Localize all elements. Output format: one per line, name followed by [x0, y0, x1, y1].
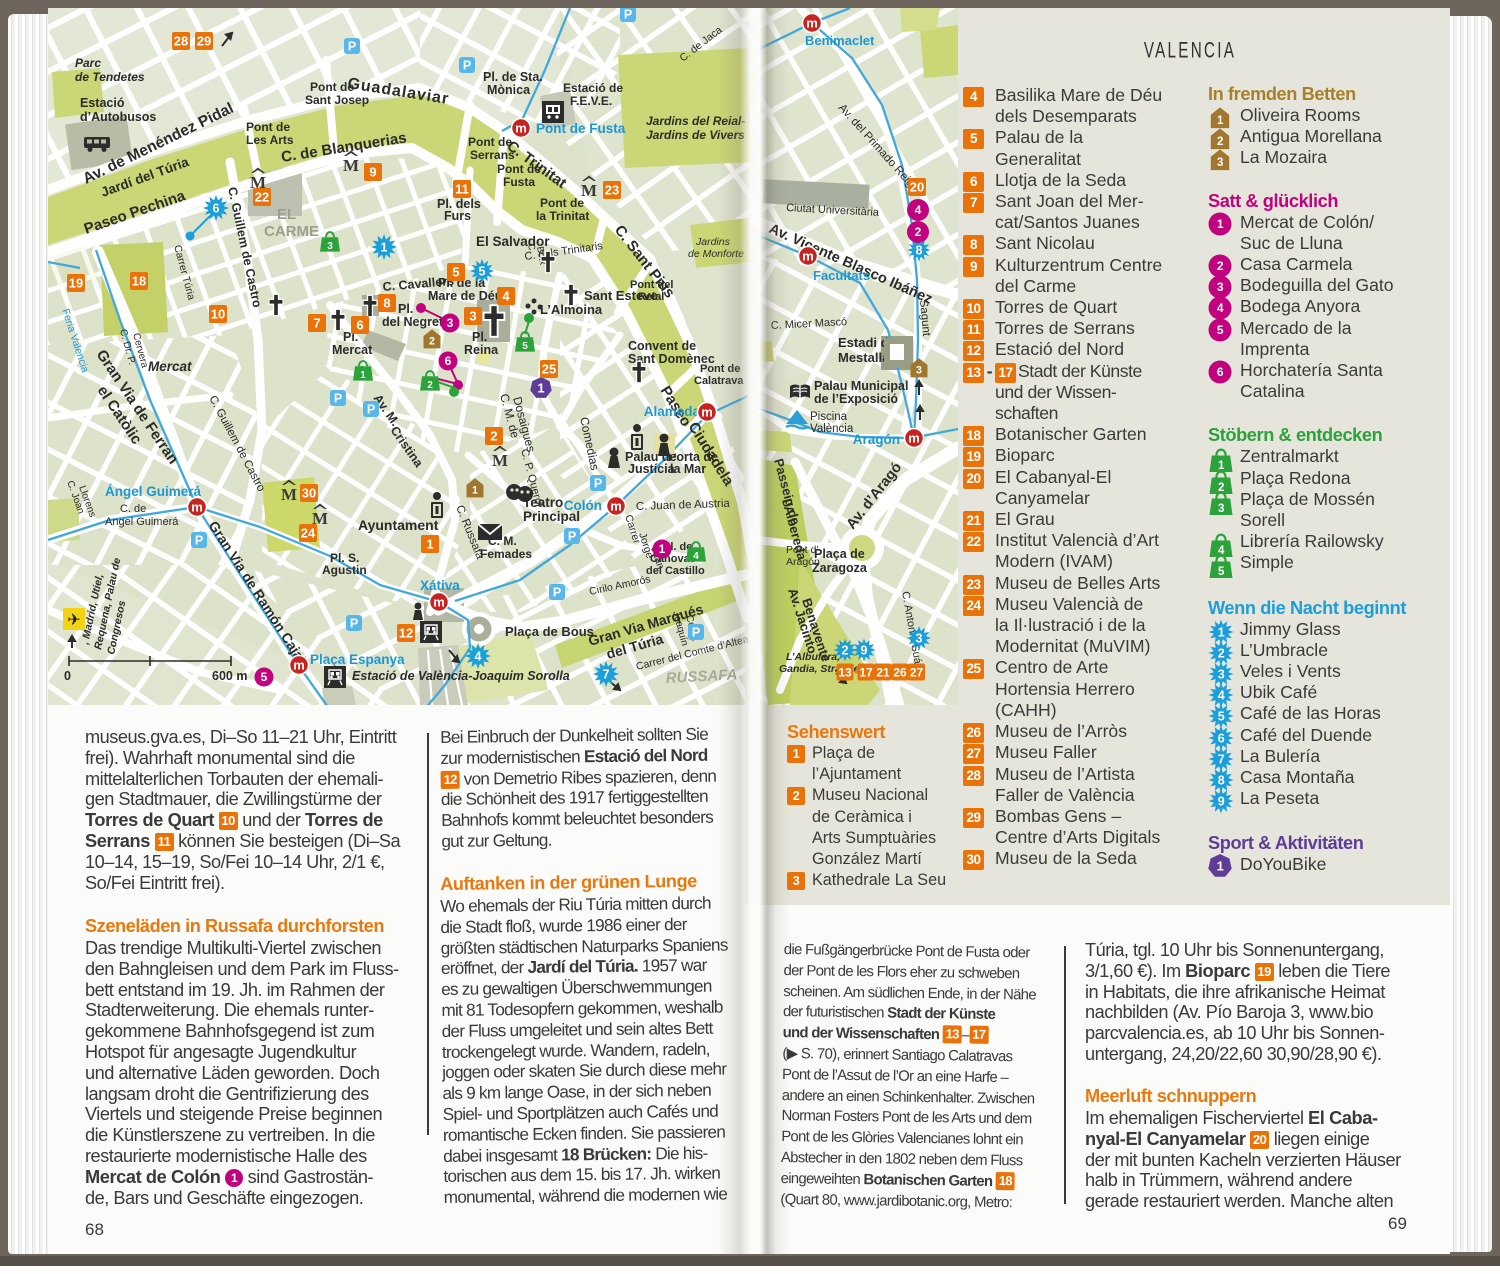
svg-text:7: 7 [313, 316, 320, 331]
svg-text:1: 1 [360, 370, 366, 381]
svg-text:d’Autobusos: d’Autobusos [80, 110, 156, 124]
svg-text:M: M [492, 451, 508, 470]
svg-text:P: P [568, 530, 576, 544]
svg-text:m: m [293, 658, 305, 673]
svg-text:M: M [281, 485, 297, 504]
svg-text:10: 10 [211, 307, 225, 322]
svg-text:Les Arts: Les Arts [246, 133, 294, 147]
svg-text:M: M [343, 156, 359, 175]
svg-text:Aragón: Aragón [786, 556, 820, 568]
svg-text:3: 3 [327, 241, 333, 252]
svg-text:m: m [191, 500, 203, 515]
svg-text:Zaragoza: Zaragoza [812, 561, 868, 575]
svg-text:Pont de Fusta: Pont de Fusta [536, 121, 626, 136]
svg-text:3: 3 [916, 632, 923, 646]
svg-text:17: 17 [859, 665, 873, 679]
svg-text:1: 1 [1218, 625, 1225, 639]
svg-text:7: 7 [1218, 752, 1225, 766]
svg-text:28: 28 [174, 34, 188, 49]
svg-text:4: 4 [915, 203, 922, 217]
svg-text:3: 3 [1218, 668, 1225, 682]
svg-text:Angel Guimerá: Angel Guimerá [105, 516, 179, 528]
svg-text:del Castillo: del Castillo [646, 565, 705, 577]
svg-text:5: 5 [1218, 566, 1225, 578]
svg-text:Facultats: Facultats [813, 268, 870, 283]
svg-text:2: 2 [842, 644, 849, 658]
svg-text:Pont de: Pont de [310, 80, 354, 94]
svg-text:la Trinitat: la Trinitat [536, 209, 589, 223]
svg-text:25: 25 [542, 362, 556, 377]
svg-text:Sant Esteve: Sant Esteve [584, 288, 658, 303]
svg-text:4: 4 [475, 650, 482, 664]
svg-text:Mestalla: Mestalla [838, 350, 890, 365]
svg-text:1: 1 [537, 381, 544, 396]
svg-text:Pl.: Pl. [398, 302, 413, 316]
svg-text:Furs: Furs [444, 209, 471, 223]
svg-text:C. de: C. de [120, 503, 146, 515]
svg-text:5: 5 [479, 265, 486, 279]
svg-text:3: 3 [1218, 503, 1224, 515]
svg-text:19: 19 [69, 276, 83, 291]
svg-text:CARME: CARME [264, 223, 319, 240]
svg-text:6: 6 [1218, 731, 1225, 745]
svg-text:5: 5 [1217, 323, 1224, 337]
svg-text:Pont de: Pont de [246, 120, 290, 134]
svg-text:1: 1 [472, 485, 478, 497]
svg-text:Plaça de: Plaça de [814, 547, 865, 561]
svg-text:la Mar: la Mar [670, 462, 706, 476]
svg-text:5: 5 [452, 265, 459, 280]
svg-text:3: 3 [1217, 280, 1224, 294]
svg-text:2: 2 [429, 336, 435, 348]
svg-text:✈: ✈ [67, 612, 80, 629]
svg-text:Aragón: Aragón [853, 432, 900, 447]
svg-text:2: 2 [1217, 259, 1224, 273]
svg-text:Xátiva: Xátiva [420, 578, 460, 593]
svg-text:Sant Josep: Sant Josep [305, 93, 369, 107]
svg-text:Estació de: Estació de [563, 81, 623, 95]
svg-text:Pont d’: Pont d’ [786, 544, 819, 556]
svg-text:València: València [810, 423, 854, 435]
svg-text:1: 1 [426, 537, 433, 552]
svg-text:F.E.V.E.: F.E.V.E. [570, 94, 612, 108]
svg-text:8: 8 [383, 296, 390, 311]
svg-text:P: P [350, 617, 358, 631]
svg-text:L’Albufera,: L’Albufera, [786, 651, 840, 663]
svg-text:m: m [701, 405, 713, 420]
svg-text:1: 1 [1217, 115, 1224, 127]
svg-text:0: 0 [64, 669, 71, 683]
svg-text:3: 3 [1217, 157, 1223, 169]
svg-text:P: P [195, 534, 203, 548]
svg-text:Mare de Déu: Mare de Déu [428, 289, 502, 303]
svg-text:Benimaclet: Benimaclet [805, 33, 875, 48]
svg-text:Reina: Reina [464, 343, 499, 357]
svg-text:del Negret: del Negret [382, 315, 444, 329]
svg-text:Colón: Colón [564, 498, 602, 513]
svg-text:29: 29 [197, 34, 211, 49]
svg-text:2: 2 [1217, 136, 1223, 148]
svg-text:Mercat: Mercat [332, 343, 373, 357]
svg-text:1: 1 [381, 241, 388, 255]
svg-text:6: 6 [1217, 365, 1224, 379]
svg-text:Palau Municipal: Palau Municipal [814, 379, 908, 393]
svg-text:4: 4 [502, 289, 510, 304]
svg-text:P: P [594, 477, 602, 491]
svg-text:Estació: Estació [80, 96, 125, 110]
svg-text:8: 8 [1218, 774, 1225, 788]
svg-text:1: 1 [1217, 217, 1224, 231]
svg-text:m: m [806, 16, 818, 31]
svg-text:Plaça Espanya: Plaça Espanya [310, 652, 405, 667]
svg-text:3: 3 [447, 316, 454, 330]
svg-text:EL: EL [277, 206, 296, 223]
svg-text:4: 4 [693, 551, 699, 562]
svg-text:m: m [610, 499, 622, 514]
svg-text:de l’Exposició: de l’Exposició [814, 392, 898, 406]
svg-text:7: 7 [603, 668, 610, 682]
svg-text:2: 2 [490, 429, 497, 444]
svg-text:6: 6 [356, 318, 363, 333]
svg-text:m: m [908, 431, 920, 446]
svg-text:5: 5 [261, 670, 268, 684]
svg-text:21: 21 [876, 665, 890, 679]
svg-text:27: 27 [910, 665, 924, 679]
svg-text:5: 5 [522, 341, 528, 352]
svg-text:8: 8 [916, 244, 923, 258]
svg-text:Pl.: Pl. [472, 330, 487, 344]
svg-text:Femades: Femades [480, 547, 532, 561]
svg-text:6: 6 [445, 354, 452, 368]
svg-text:Plaça de Bous: Plaça de Bous [505, 624, 594, 639]
svg-text:9: 9 [1218, 795, 1225, 809]
svg-text:P: P [692, 626, 700, 640]
svg-text:23: 23 [605, 183, 619, 198]
svg-text:24: 24 [301, 526, 316, 541]
svg-text:22: 22 [255, 190, 269, 205]
svg-text:Estació de València-Joaquim So: Estació de València-Joaquim Sorolla [352, 669, 570, 683]
svg-text:3: 3 [469, 309, 476, 324]
svg-text:Alameda: Alameda [644, 404, 701, 419]
svg-text:2: 2 [915, 225, 922, 239]
svg-text:30: 30 [302, 486, 316, 501]
svg-text:P: P [553, 586, 561, 600]
svg-text:3: 3 [916, 365, 922, 377]
svg-text:1: 1 [659, 542, 666, 556]
svg-text:Convent de: Convent de [628, 339, 696, 353]
svg-text:4: 4 [1218, 689, 1225, 703]
svg-text:2: 2 [427, 380, 433, 391]
svg-text:Agustin: Agustin [322, 563, 367, 577]
svg-text:600 m: 600 m [212, 669, 247, 683]
svg-text:20: 20 [910, 180, 924, 195]
svg-text:Mercat: Mercat [148, 359, 192, 374]
svg-text:P: P [367, 403, 375, 417]
svg-text:Parc: Parc [75, 56, 101, 70]
svg-text:Pont de: Pont de [540, 196, 584, 210]
svg-text:Pl. de Sta.: Pl. de Sta. [483, 70, 543, 84]
svg-text:de Tendetes: de Tendetes [75, 70, 145, 84]
svg-text:26: 26 [893, 665, 907, 679]
svg-text:m: m [515, 121, 527, 136]
svg-text:Piscina: Piscina [810, 411, 848, 423]
svg-text:13: 13 [838, 665, 852, 679]
svg-text:4: 4 [1217, 302, 1224, 316]
svg-text:P: P [624, 8, 632, 22]
svg-text:9: 9 [861, 644, 868, 658]
svg-text:1: 1 [1217, 859, 1224, 874]
svg-text:11: 11 [455, 182, 469, 197]
svg-text:P: P [463, 59, 471, 73]
svg-text:5: 5 [1218, 710, 1225, 724]
svg-text:Ángel Guimerá: Ángel Guimerá [105, 484, 202, 499]
svg-text:9: 9 [369, 165, 376, 180]
svg-text:P: P [334, 392, 342, 406]
svg-text:P: P [348, 40, 356, 54]
svg-text:18: 18 [132, 274, 146, 289]
svg-text:Justícia: Justícia [628, 462, 676, 476]
svg-text:Mònica: Mònica [487, 83, 531, 97]
svg-text:Ayuntament: Ayuntament [358, 517, 439, 533]
svg-text:6: 6 [213, 202, 220, 216]
svg-text:M: M [581, 181, 597, 200]
svg-text:m: m [433, 595, 445, 610]
svg-text:Fusta: Fusta [503, 175, 535, 189]
svg-text:2: 2 [1218, 646, 1225, 660]
svg-text:m: m [802, 249, 814, 264]
svg-text:12: 12 [399, 626, 413, 641]
